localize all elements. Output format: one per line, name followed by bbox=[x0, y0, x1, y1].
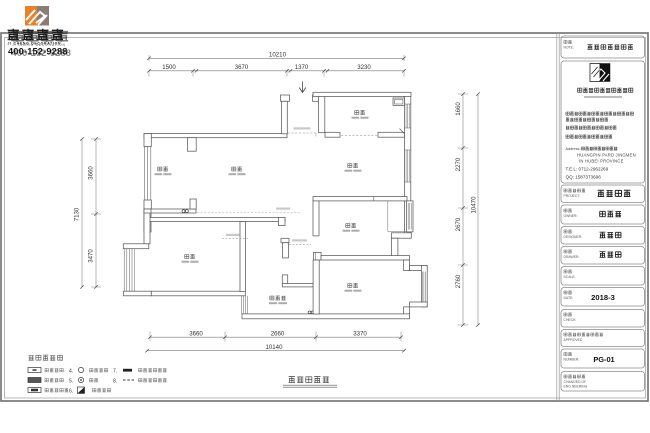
svg-text:1500: 1500 bbox=[162, 64, 176, 71]
svg-text:PG-01: PG-01 bbox=[593, 355, 614, 364]
svg-text:2660: 2660 bbox=[271, 331, 285, 338]
svg-text:6.: 6. bbox=[69, 389, 73, 395]
svg-text:DESIGNER:: DESIGNER: bbox=[564, 235, 583, 239]
svg-text:7.: 7. bbox=[113, 369, 117, 375]
svg-text:3660: 3660 bbox=[88, 166, 95, 180]
svg-text:CHANGED OF: CHANGED OF bbox=[564, 380, 587, 384]
svg-text:2760: 2760 bbox=[455, 274, 462, 288]
svg-text:2270: 2270 bbox=[455, 157, 462, 171]
svg-text:QQ: 1587373696: QQ: 1587373696 bbox=[566, 175, 602, 180]
svg-text:10140: 10140 bbox=[266, 344, 284, 351]
svg-text:3470: 3470 bbox=[88, 249, 95, 263]
svg-text:3660: 3660 bbox=[189, 331, 203, 338]
svg-text:HUANGPIN PARD JINGMEN: HUANGPIN PARD JINGMEN bbox=[577, 153, 636, 158]
svg-text:10210: 10210 bbox=[269, 52, 287, 59]
svg-text:T.E.L: 0712-2962269: T.E.L: 0712-2962269 bbox=[566, 167, 609, 172]
svg-text:Address:: Address: bbox=[566, 147, 581, 151]
svg-text:OWNER:: OWNER: bbox=[564, 214, 578, 218]
svg-text:1370: 1370 bbox=[295, 64, 309, 71]
svg-text:DATE:: DATE: bbox=[564, 296, 574, 300]
svg-text:7130: 7130 bbox=[74, 207, 81, 221]
svg-text:2670: 2670 bbox=[455, 217, 462, 231]
svg-text:CHECK:: CHECK: bbox=[564, 318, 577, 322]
svg-text:8.: 8. bbox=[113, 379, 117, 385]
svg-text:PROJECT:: PROJECT: bbox=[564, 194, 580, 198]
svg-text:ENG NEERING: ENG NEERING bbox=[564, 385, 588, 389]
svg-text:NOTE:: NOTE: bbox=[564, 46, 574, 50]
svg-text:1660: 1660 bbox=[455, 102, 462, 116]
svg-text:DRAWER:: DRAWER: bbox=[564, 255, 580, 259]
svg-text:IN HUBEI PROVINCE: IN HUBEI PROVINCE bbox=[579, 159, 624, 164]
svg-text:3670: 3670 bbox=[235, 64, 249, 71]
svg-text:3230: 3230 bbox=[357, 64, 371, 71]
svg-text:APPROVED: APPROVED bbox=[564, 338, 583, 342]
svg-text:SCALE:: SCALE: bbox=[564, 275, 576, 279]
svg-text:2018-3: 2018-3 bbox=[591, 293, 615, 302]
svg-text:NUMBER:: NUMBER: bbox=[564, 358, 580, 362]
svg-text:3370: 3370 bbox=[353, 331, 367, 338]
svg-text:400-152-9288: 400-152-9288 bbox=[12, 48, 72, 58]
svg-text:5.: 5. bbox=[69, 379, 73, 385]
svg-text:4.: 4. bbox=[69, 369, 73, 375]
svg-text:10470: 10470 bbox=[471, 196, 478, 214]
